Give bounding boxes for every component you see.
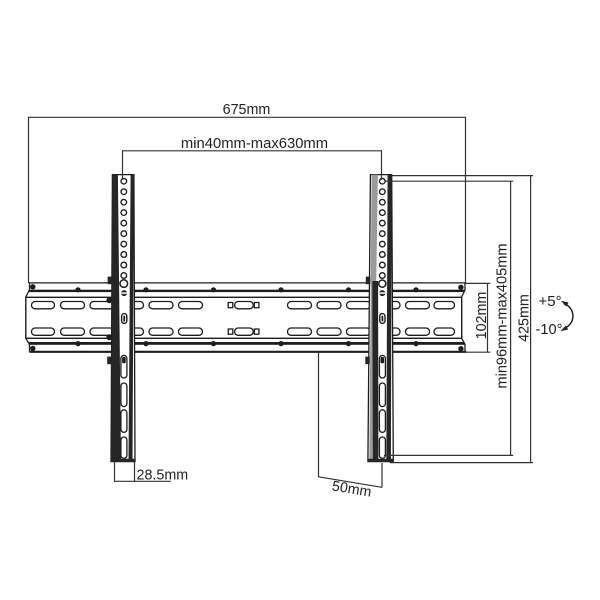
svg-text:102mm: 102mm	[474, 292, 490, 340]
svg-text:min40mm-max630mm: min40mm-max630mm	[181, 136, 328, 152]
svg-text:-10°: -10°	[536, 322, 563, 338]
svg-text:+5°: +5°	[539, 293, 562, 310]
svg-text:28.5mm: 28.5mm	[137, 468, 189, 484]
svg-text:425mm: 425mm	[517, 294, 533, 342]
svg-text:675mm: 675mm	[223, 102, 271, 118]
svg-text:min96mm-max405mm: min96mm-max405mm	[495, 243, 511, 388]
